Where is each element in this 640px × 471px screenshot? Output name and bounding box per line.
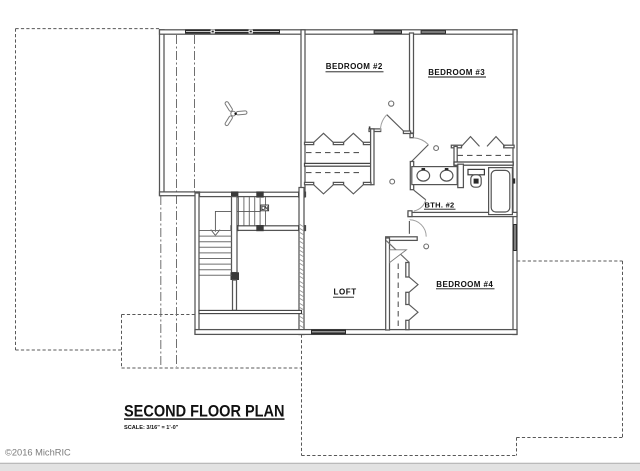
svg-text:©2016 MichRIC: ©2016 MichRIC [5,448,71,458]
svg-text:SECOND FLOOR PLAN: SECOND FLOOR PLAN [124,403,285,421]
svg-text:BEDROOM #2: BEDROOM #2 [326,62,383,71]
svg-text:BEDROOM #3: BEDROOM #3 [428,68,485,77]
svg-text:BEDROOM #4: BEDROOM #4 [436,280,493,289]
svg-text:SCALE: 3/16" = 1'-0": SCALE: 3/16" = 1'-0" [124,425,179,431]
svg-text:LOFT: LOFT [334,288,357,297]
svg-text:BTH. #2: BTH. #2 [425,200,455,209]
